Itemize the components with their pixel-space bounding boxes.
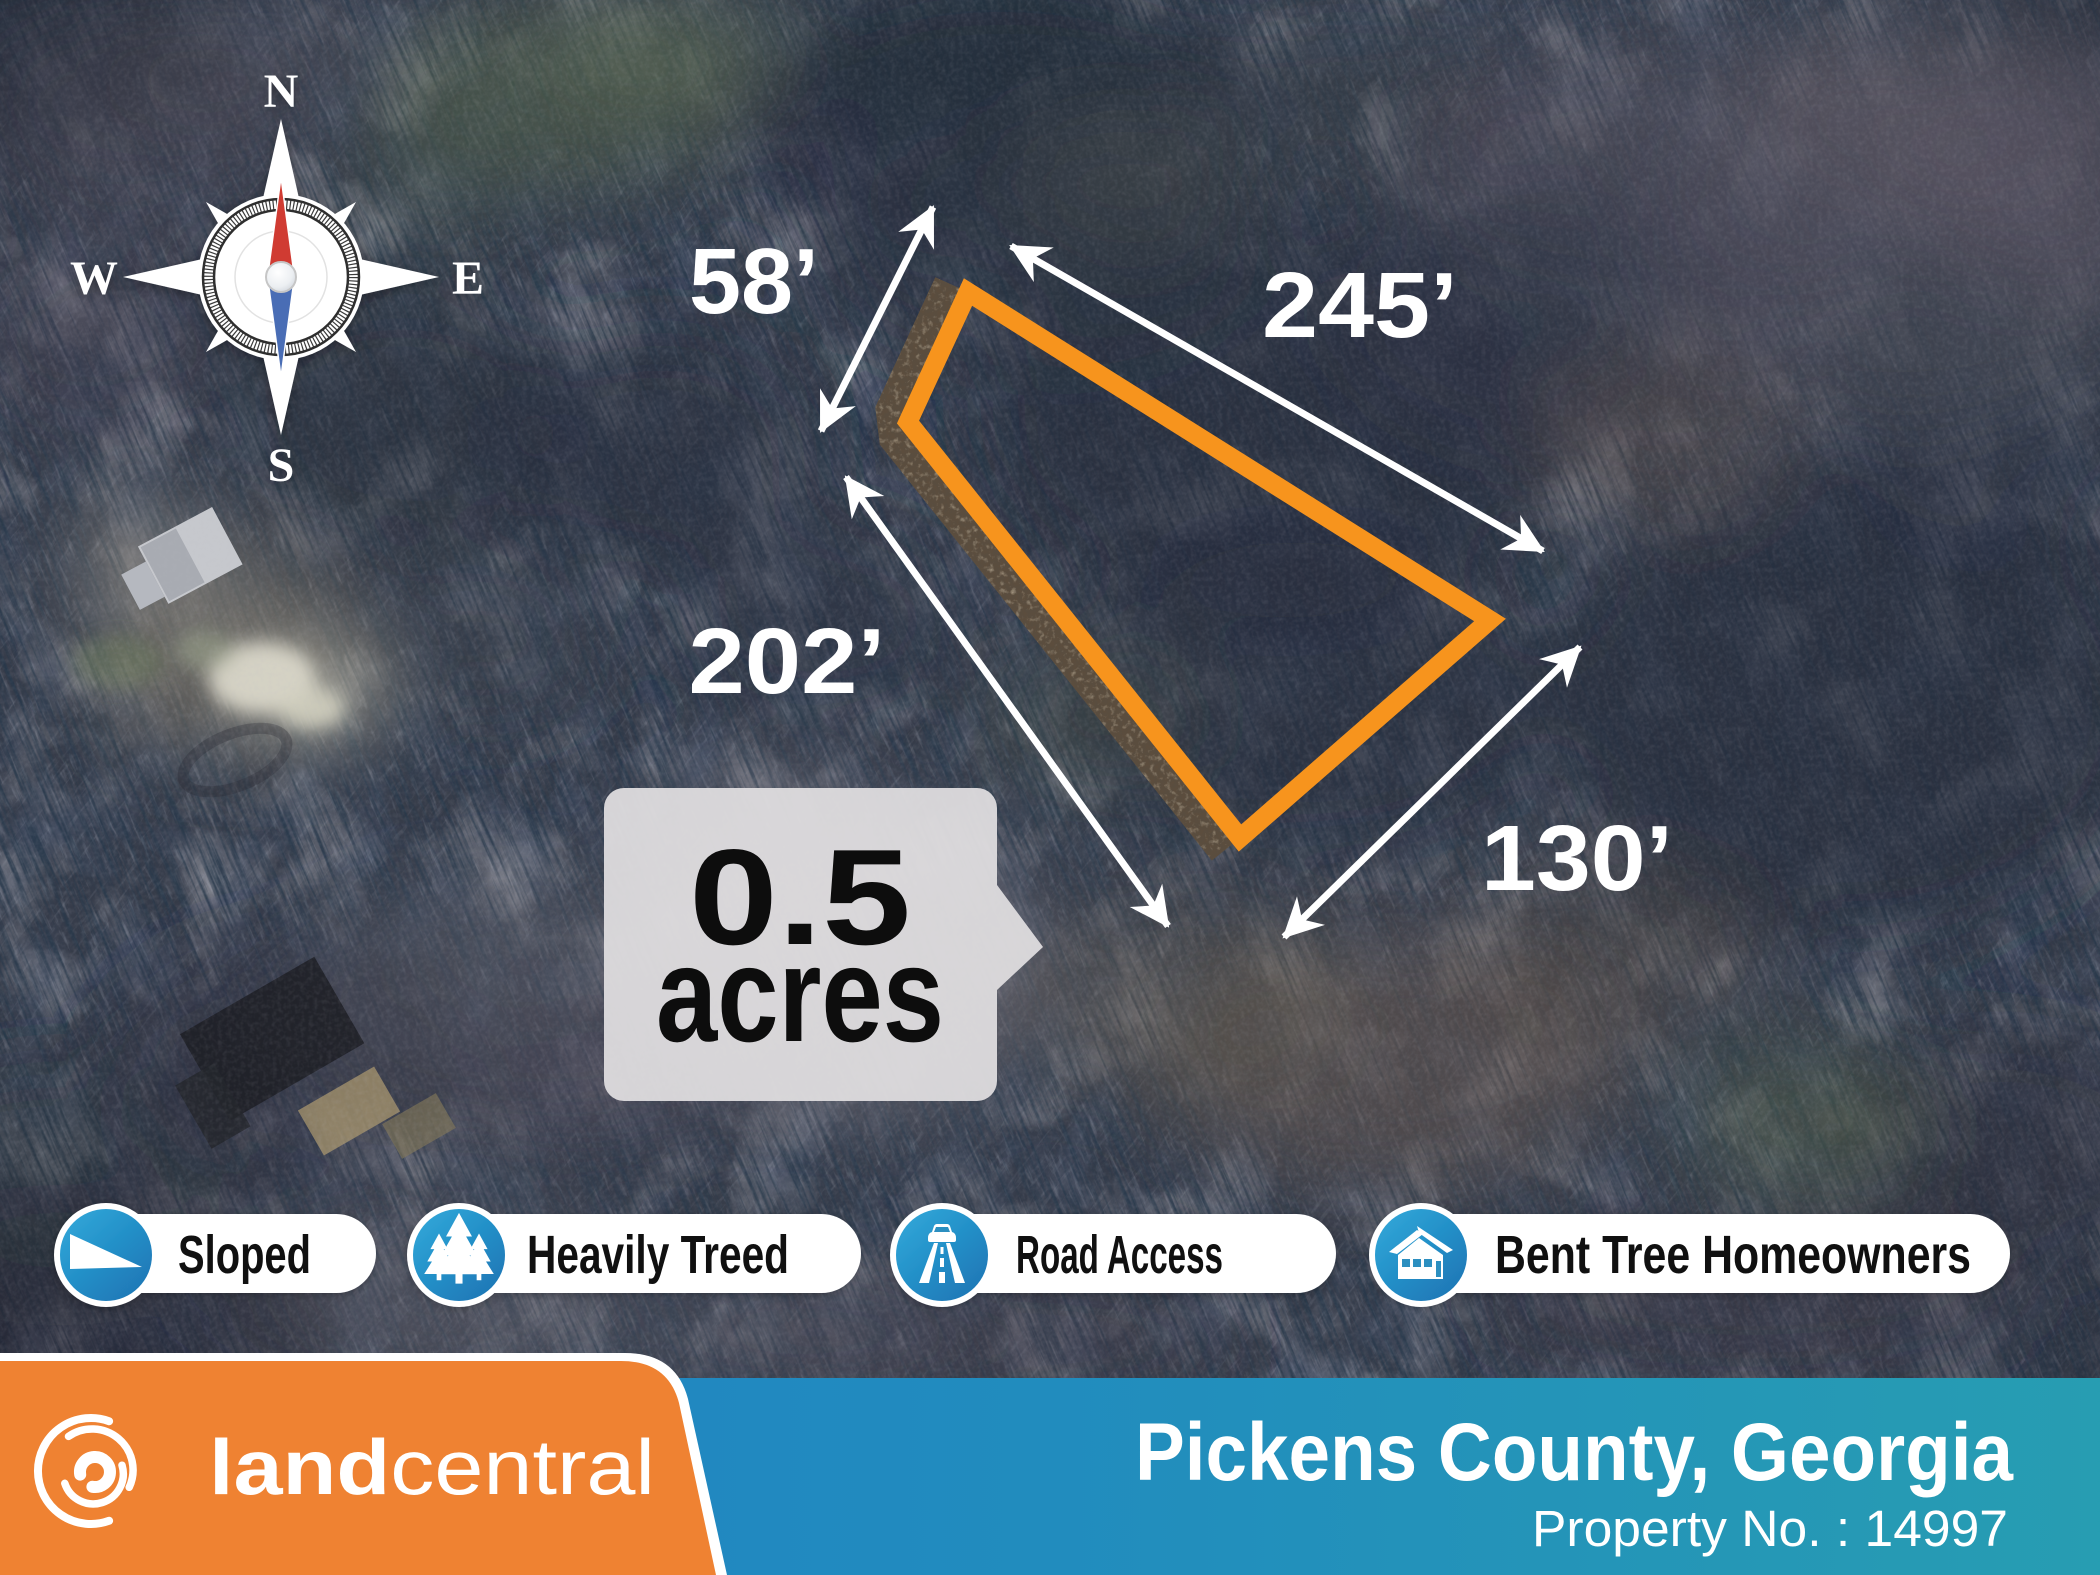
svg-text:acres: acres — [656, 918, 944, 1070]
svg-text:130’: 130’ — [1481, 806, 1673, 910]
svg-text:58’: 58’ — [689, 229, 819, 333]
svg-text:Road Access: Road Access — [1016, 1225, 1223, 1285]
svg-text:S: S — [268, 439, 295, 492]
svg-text:W: W — [70, 252, 118, 305]
svg-text:landcentral: landcentral — [209, 1423, 655, 1511]
svg-text:Heavily Treed: Heavily Treed — [527, 1225, 789, 1285]
svg-text:Bent Tree Homeowners: Bent Tree Homeowners — [1495, 1225, 1971, 1285]
svg-text:E: E — [452, 252, 484, 305]
svg-text:Property No. : 14997: Property No. : 14997 — [1532, 1500, 2008, 1557]
svg-text:Sloped: Sloped — [178, 1225, 311, 1285]
svg-text:N: N — [264, 65, 299, 118]
svg-text:245’: 245’ — [1262, 253, 1458, 357]
svg-text:Pickens County, Georgia: Pickens County, Georgia — [1135, 1407, 2014, 1498]
svg-text:202’: 202’ — [689, 609, 886, 713]
